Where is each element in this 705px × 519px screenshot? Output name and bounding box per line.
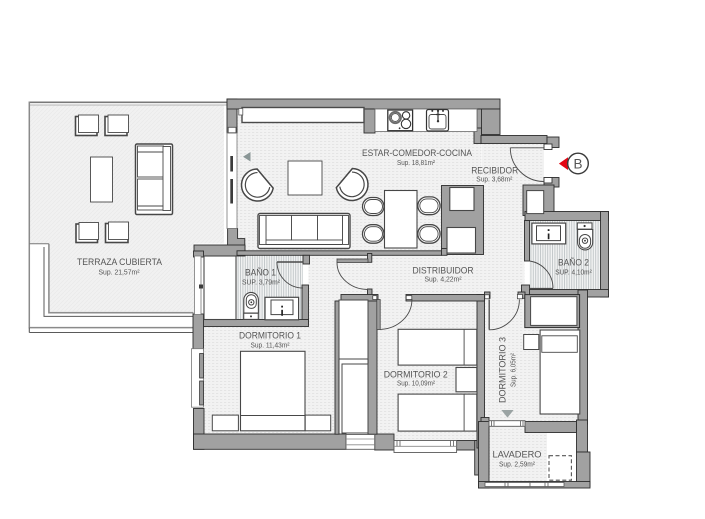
svg-text:TERRAZA CUBIERTA: TERRAZA CUBIERTA [77, 257, 163, 268]
svg-text:Sup. 3,68m²: Sup. 3,68m² [476, 177, 513, 184]
svg-text:SUP. 3,79m²: SUP. 3,79m² [242, 280, 281, 287]
svg-text:DORMITORIO 3: DORMITORIO 3 [498, 337, 509, 403]
svg-text:Sup. 6,05m²: Sup. 6,05m² [511, 352, 518, 387]
svg-text:DISTRIBUIDOR: DISTRIBUIDOR [413, 266, 474, 277]
svg-text:DORMITORIO 1: DORMITORIO 1 [239, 331, 301, 342]
svg-text:Sup. 4,22m²: Sup. 4,22m² [425, 277, 463, 284]
svg-text:Sup. 10,09m²: Sup. 10,09m² [397, 381, 436, 388]
svg-text:SUP. 4,10m²: SUP. 4,10m² [555, 270, 592, 277]
svg-text:Sup. 18,81m²: Sup. 18,81m² [397, 160, 436, 167]
svg-text:Sup. 11,43m²: Sup. 11,43m² [251, 343, 291, 350]
svg-text:ESTAR-COMEDOR-COCINA: ESTAR-COMEDOR-COCINA [362, 148, 473, 159]
svg-text:Sup. 21,57m²: Sup. 21,57m² [99, 270, 141, 277]
svg-text:B: B [573, 156, 582, 171]
svg-text:LAVADERO: LAVADERO [493, 450, 542, 461]
svg-text:Sup. 2,59m²: Sup. 2,59m² [499, 462, 536, 469]
svg-text:BAÑO 1: BAÑO 1 [245, 268, 276, 279]
svg-text:BAÑO 2: BAÑO 2 [558, 258, 589, 269]
svg-text:RECIBIDOR: RECIBIDOR [471, 166, 518, 177]
svg-text:DORMITORIO 2: DORMITORIO 2 [384, 370, 448, 381]
